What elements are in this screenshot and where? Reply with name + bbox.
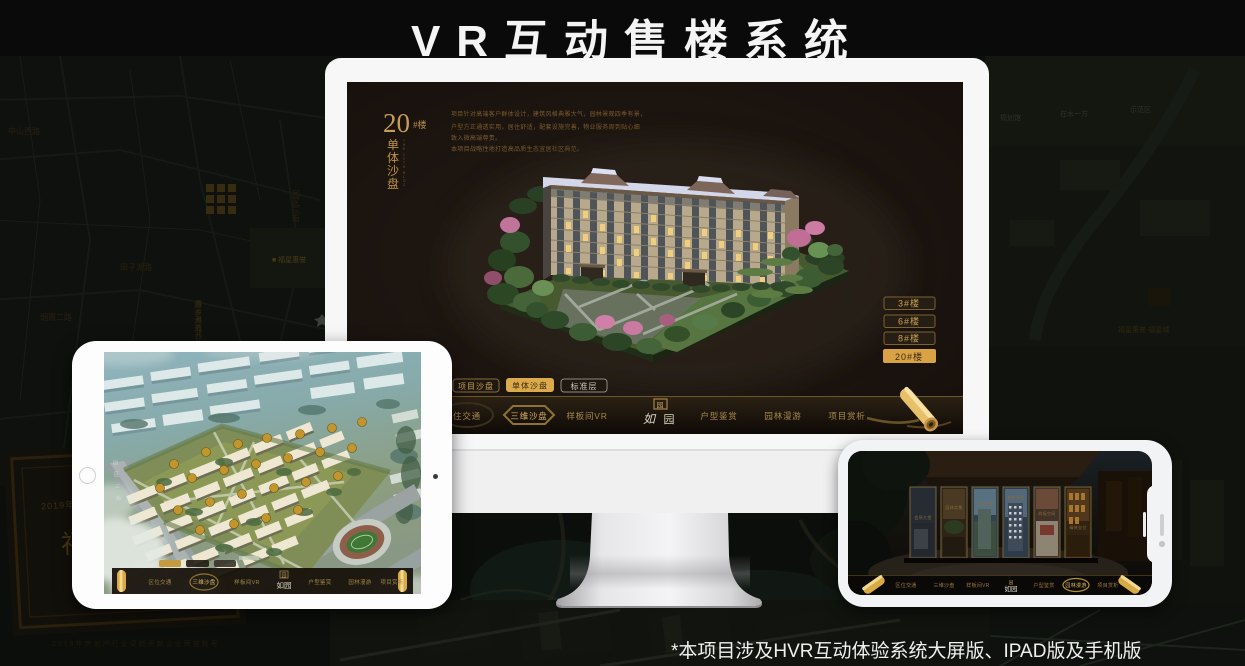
svg-text:体: 体 xyxy=(387,151,399,165)
svg-text:项目针对高端客户群体设计，建筑风格典雅大气，园林景观四季有景: 项目针对高端客户群体设计，建筑风格典雅大气，园林景观四季有景， xyxy=(451,110,646,118)
svg-text:园: 园 xyxy=(657,402,664,410)
svg-text:户型鉴赏: 户型鉴赏 xyxy=(1033,582,1054,589)
svg-text:园区三街: 园区三街 xyxy=(292,190,301,223)
svg-text:三维沙盘: 三维沙盘 xyxy=(933,582,954,589)
svg-text:20: 20 xyxy=(383,108,410,138)
svg-text:园林漫游: 园林漫游 xyxy=(764,411,801,421)
svg-text:E: E xyxy=(403,147,405,151)
svg-text:致入微高端尊贵。: 致入微高端尊贵。 xyxy=(451,134,501,142)
svg-text:3#楼: 3#楼 xyxy=(898,298,920,309)
svg-text:如园: 如园 xyxy=(1005,584,1018,593)
svg-text:#楼: #楼 xyxy=(413,119,427,130)
svg-text:沙: 沙 xyxy=(387,164,399,178)
svg-text:园: 园 xyxy=(281,573,286,579)
svg-text:烟霞二路: 烟霞二路 xyxy=(40,312,72,322)
svg-text:三维沙盘: 三维沙盘 xyxy=(192,578,215,586)
svg-text:小区实景: 小区实景 xyxy=(976,500,993,506)
svg-text:项目赏析: 项目赏析 xyxy=(380,578,403,586)
svg-text:福星惠誉·福星城: 福星惠誉·福星城 xyxy=(1118,325,1169,334)
svg-text:园林漫游: 园林漫游 xyxy=(348,578,371,586)
svg-text:项目赏析: 项目赏析 xyxy=(828,411,865,421)
svg-text:样板空间: 样板空间 xyxy=(1038,510,1055,516)
svg-text:20#楼: 20#楼 xyxy=(895,351,923,362)
svg-text:单: 单 xyxy=(387,138,399,152)
svg-text:如园: 如园 xyxy=(277,580,292,590)
svg-text:户型方正通透实用，居住舒适，配套设施完善，物业服务周到贴心细: 户型方正通透实用，居住舒适，配套设施完善，物业服务周到贴心细 xyxy=(451,123,640,131)
svg-text:标准层: 标准层 xyxy=(571,381,598,391)
svg-text:单体沙盘: 单体沙盘 xyxy=(512,381,548,391)
svg-text:园: 园 xyxy=(664,413,675,426)
svg-text:户型鉴赏: 户型鉴赏 xyxy=(308,578,331,586)
svg-text:楼栋外观: 楼栋外观 xyxy=(1007,494,1024,500)
svg-text:盘: 盘 xyxy=(387,176,399,191)
svg-text:2019年房地产行业卓越贡献企业荣誉称号: 2019年房地产行业卓越贡献企业荣誉称号 xyxy=(52,639,220,648)
svg-text:住交通: 住交通 xyxy=(453,411,481,421)
svg-text:项目赏析: 项目赏析 xyxy=(1097,582,1118,589)
svg-text:精装交付: 精装交付 xyxy=(1069,524,1086,530)
svg-text:在水一方: 在水一方 xyxy=(1060,109,1088,118)
svg-text:6#楼: 6#楼 xyxy=(898,316,920,327)
svg-text:规划馆: 规划馆 xyxy=(1000,113,1021,122)
svg-text:园林漫游: 园林漫游 xyxy=(1065,582,1086,589)
svg-text:如: 如 xyxy=(643,412,657,426)
svg-text:三维沙盘: 三维沙盘 xyxy=(510,411,547,421)
svg-text:田子湖路: 田子湖路 xyxy=(120,262,152,272)
svg-text:样板间VR: 样板间VR xyxy=(566,411,607,421)
svg-text:会所大堂: 会所大堂 xyxy=(914,514,931,520)
svg-text:区位交通: 区位交通 xyxy=(895,582,916,589)
svg-text:区: 区 xyxy=(114,472,119,478)
svg-text:园: 园 xyxy=(113,460,118,466)
svg-text:8#楼: 8#楼 xyxy=(898,333,920,344)
svg-text:本项目战略性地打造高品质生态宜居社区典范。: 本项目战略性地打造高品质生态宜居社区典范。 xyxy=(451,145,583,153)
svg-text:项目沙盘: 项目沙盘 xyxy=(458,381,494,391)
svg-text:园林实景: 园林实景 xyxy=(945,504,962,510)
svg-text:示范区: 示范区 xyxy=(1130,105,1151,114)
svg-text:中山西路: 中山西路 xyxy=(8,126,40,136)
svg-text:样板间VR: 样板间VR xyxy=(966,582,990,589)
svg-text:户型鉴赏: 户型鉴赏 xyxy=(700,411,737,421)
svg-text:区位交通: 区位交通 xyxy=(148,578,171,586)
svg-text:■ 福星惠誉: ■ 福星惠誉 xyxy=(272,255,306,264)
svg-text:样板间VR: 样板间VR xyxy=(234,578,260,586)
